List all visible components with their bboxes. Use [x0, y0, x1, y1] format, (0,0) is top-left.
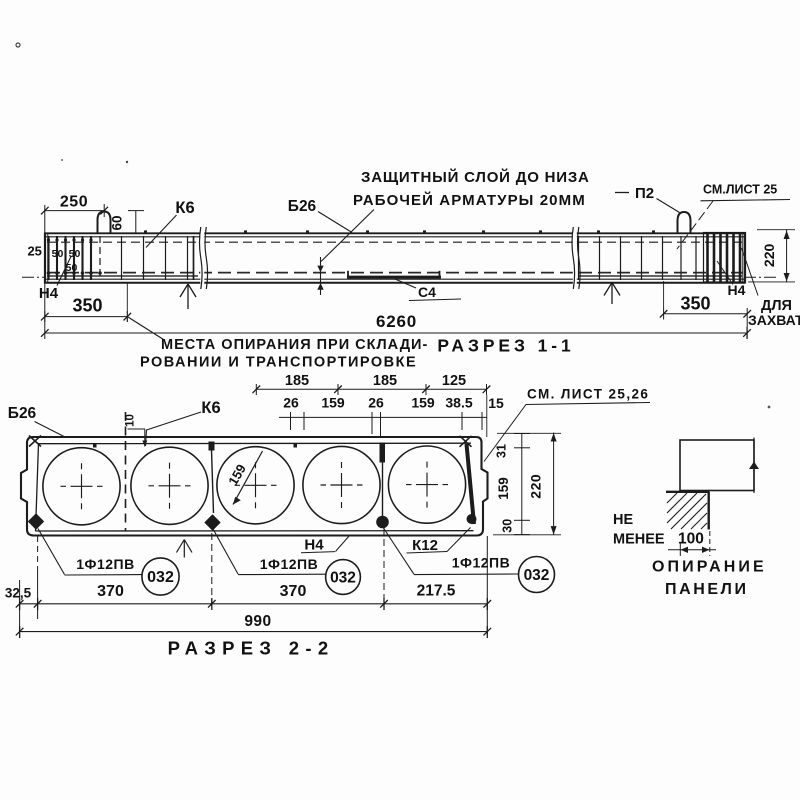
svg-text:032: 032: [524, 567, 550, 584]
svg-text:К12: К12: [412, 537, 438, 554]
svg-text:185: 185: [373, 373, 397, 389]
svg-text:250: 250: [60, 194, 88, 211]
svg-text:Н4: Н4: [39, 285, 59, 302]
svg-text:Н4: Н4: [304, 537, 324, 554]
svg-text:159: 159: [225, 462, 249, 488]
svg-text:350: 350: [72, 296, 102, 316]
svg-text:159: 159: [321, 395, 345, 411]
svg-text:РАЗРЕЗ 1-1: РАЗРЕЗ 1-1: [437, 336, 574, 356]
svg-text:370: 370: [97, 583, 124, 600]
svg-text:159: 159: [411, 395, 435, 411]
svg-text:220: 220: [761, 244, 777, 268]
svg-text:370: 370: [280, 583, 307, 600]
svg-text:31: 31: [495, 444, 509, 458]
svg-text:10: 10: [125, 414, 137, 427]
svg-text:РАЗРЕЗ 2-2: РАЗРЕЗ 2-2: [168, 638, 335, 659]
svg-text:НЕ: НЕ: [613, 512, 633, 528]
svg-text:159: 159: [496, 477, 511, 500]
svg-text:Б26: Б26: [288, 198, 317, 215]
svg-text:ЗАЩИТНЫЙ СЛОЙ ДО НИЗА: ЗАЩИТНЫЙ СЛОЙ ДО НИЗА: [361, 168, 590, 186]
svg-text:П2: П2: [635, 185, 654, 202]
svg-text:ОПИРАНИЕ: ОПИРАНИЕ: [652, 559, 767, 576]
svg-text:РОВАНИИ И ТРАНСПОРТИРОВКЕ: РОВАНИИ И ТРАНСПОРТИРОВКЕ: [140, 355, 417, 371]
svg-text:220: 220: [528, 474, 544, 499]
svg-text:ПАНЕЛИ: ПАНЕЛИ: [665, 581, 749, 598]
svg-text:СМ.ЛИСТ 25: СМ.ЛИСТ 25: [703, 183, 777, 197]
svg-text:26: 26: [283, 395, 299, 411]
svg-text:50: 50: [52, 248, 64, 260]
svg-text:350: 350: [680, 294, 710, 314]
svg-text:МЕНЕЕ: МЕНЕЕ: [613, 532, 665, 548]
svg-text:К6: К6: [201, 399, 220, 417]
svg-text:125: 125: [442, 373, 466, 389]
svg-text:С4: С4: [418, 284, 436, 300]
svg-text:25: 25: [27, 244, 41, 259]
svg-text:К6: К6: [175, 199, 194, 217]
svg-text:1Ф12ПВ: 1Ф12ПВ: [76, 556, 134, 572]
svg-text:185: 185: [285, 373, 309, 389]
svg-text:1Ф12ПВ: 1Ф12ПВ: [260, 556, 318, 572]
svg-text:РАБОЧЕЙ АРМАТУРЫ 20ММ: РАБОЧЕЙ АРМАТУРЫ 20ММ: [353, 191, 586, 209]
svg-text:032: 032: [147, 569, 174, 586]
svg-text:МЕСТА ОПИРАНИЯ ПРИ СКЛАДИ-: МЕСТА ОПИРАНИЯ ПРИ СКЛАДИ-: [161, 337, 428, 353]
svg-text:Н4: Н4: [728, 282, 746, 298]
svg-text:60: 60: [110, 215, 125, 230]
svg-text:032: 032: [330, 570, 356, 587]
svg-text:38.5: 38.5: [445, 395, 472, 411]
svg-text:32,5: 32,5: [5, 586, 32, 601]
svg-text:СМ. ЛИСТ 25,26: СМ. ЛИСТ 25,26: [527, 387, 649, 402]
svg-text:990: 990: [244, 613, 271, 630]
svg-text:15: 15: [488, 395, 504, 411]
svg-text:1Ф12ПВ: 1Ф12ПВ: [452, 555, 510, 571]
svg-text:30: 30: [501, 519, 515, 533]
svg-text:Б26: Б26: [8, 405, 37, 422]
svg-text:6260: 6260: [376, 312, 417, 331]
svg-text:ЗАХВАТА: ЗАХВАТА: [748, 312, 800, 328]
svg-text:26: 26: [368, 395, 384, 411]
svg-text:217.5: 217.5: [417, 583, 456, 600]
svg-text:100: 100: [678, 531, 704, 548]
